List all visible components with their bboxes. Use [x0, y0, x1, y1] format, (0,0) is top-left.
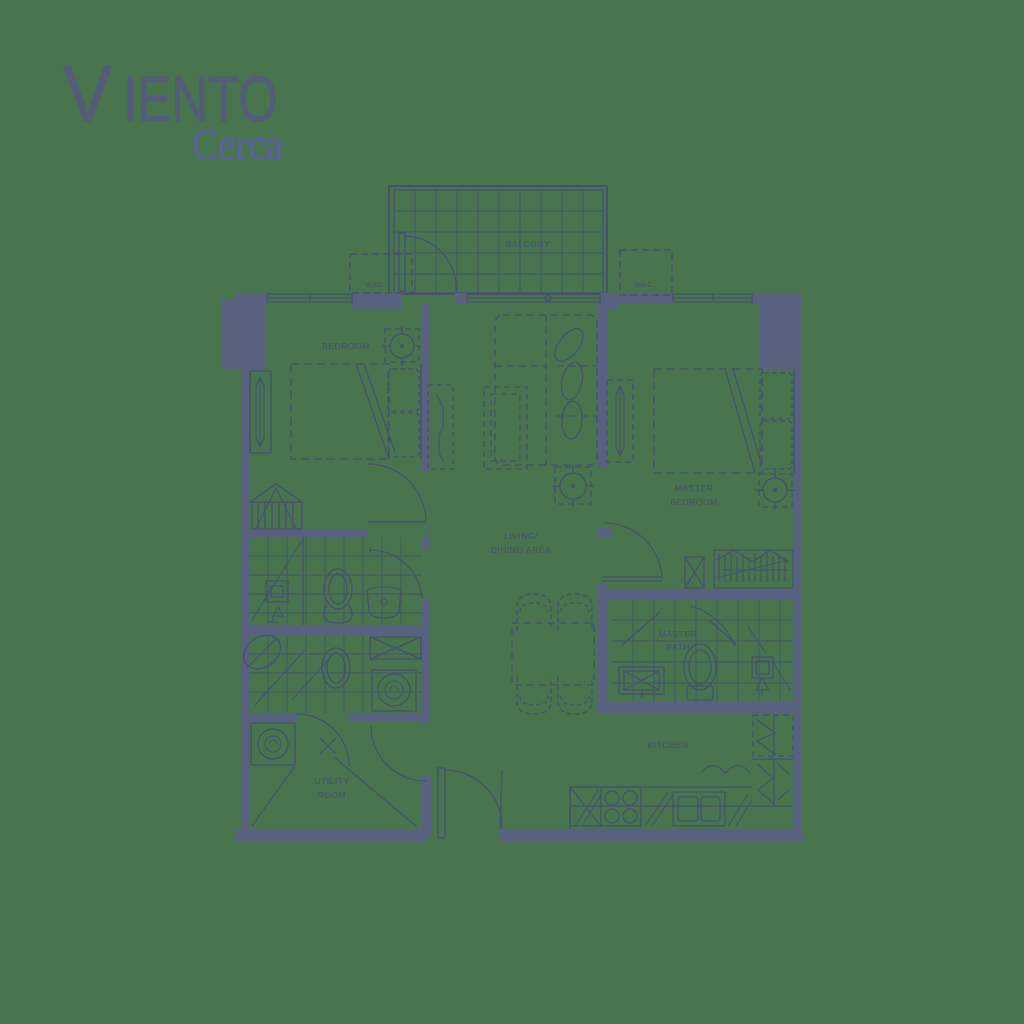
svg-text:WAC: WAC [635, 282, 653, 289]
svg-text:BATH: BATH [666, 642, 690, 652]
svg-text:BALCONY: BALCONY [506, 239, 551, 249]
svg-text:LIVING/: LIVING/ [504, 531, 538, 541]
svg-text:WAC: WAC [365, 282, 383, 289]
svg-text:ROOM: ROOM [318, 790, 346, 800]
svg-text:BEDROOM: BEDROOM [322, 341, 369, 351]
svg-text:BEDROOM: BEDROOM [670, 497, 717, 507]
svg-text:MASTER: MASTER [659, 629, 697, 639]
svg-text:DINING AREA: DINING AREA [491, 545, 551, 555]
svg-text:KITCHEN: KITCHEN [648, 740, 689, 750]
svg-text:Cerca: Cerca [192, 122, 283, 169]
svg-text:UTILITY: UTILITY [314, 776, 349, 786]
svg-text:V: V [63, 49, 113, 138]
svg-text:MASTER: MASTER [675, 483, 713, 493]
